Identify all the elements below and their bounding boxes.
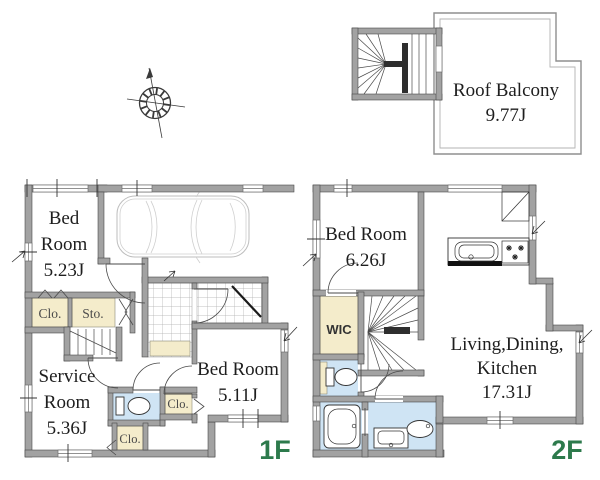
washing-machine-icon <box>407 421 433 438</box>
closet-b-door-mark <box>194 399 204 414</box>
ldk-label-2: Kitchen <box>477 358 538 379</box>
service-room-label-2: Room <box>44 392 91 413</box>
washbasin-icon <box>374 428 408 448</box>
roof-balcony-area: 9.77J <box>486 105 527 126</box>
storage-label: Sto. <box>82 306 103 321</box>
stairs-2f <box>368 296 418 370</box>
kitchen-counter <box>448 238 529 266</box>
roof-balcony-label: Roof Balcony <box>453 80 560 101</box>
bedroom2-label: Bed Room <box>197 359 279 380</box>
floor-1f-label: 1F <box>259 435 291 465</box>
toilet-icon-1f <box>116 397 150 415</box>
bathtub-icon <box>324 405 360 448</box>
bedroom1-area: 5.23J <box>44 260 85 281</box>
bedroom-2f-label: Bed Room <box>325 224 407 245</box>
service-room-area: 5.36J <box>47 418 88 439</box>
closet-b-label: Clo. <box>167 397 188 411</box>
roof-stairs <box>352 28 442 100</box>
closet-c-label: Clo. <box>119 432 140 446</box>
refrigerator-space <box>502 192 529 221</box>
stairs-1f <box>70 329 116 355</box>
ldk-label: Living,Dining, <box>451 334 564 355</box>
floor-plan-drawing: Roof Balcony 9.77J <box>0 0 600 480</box>
ldk-area: 17.31J <box>482 382 532 403</box>
bedroom-2f-area: 6.26J <box>346 250 387 271</box>
counter-edge <box>448 261 502 266</box>
north-arrow-icon <box>146 68 153 79</box>
roof-plan: Roof Balcony 9.77J <box>352 13 581 154</box>
closet-a-label: Clo. <box>39 306 62 321</box>
bedroom1-label: Bed <box>49 208 80 229</box>
entrance-step <box>150 341 190 356</box>
floor-2f-label: 2F <box>551 435 583 465</box>
service-room-label: Service <box>39 366 96 387</box>
floor-plan-2f: Bed Room 6.26J WIC Living,Dining, Kitche… <box>303 179 592 465</box>
car-icon <box>117 191 249 263</box>
north-compass-icon <box>127 68 185 138</box>
toilet-icon-2f <box>326 368 357 386</box>
bedroom1-label-2: Room <box>41 234 88 255</box>
floor-plan-1f: Bed Room 5.23J Service Room 5.36J Bed Ro… <box>12 179 297 465</box>
bedroom2-area: 5.11J <box>218 385 258 406</box>
wic-label: WIC <box>326 322 352 337</box>
floor-plan-page: Roof Balcony 9.77J <box>0 0 600 480</box>
